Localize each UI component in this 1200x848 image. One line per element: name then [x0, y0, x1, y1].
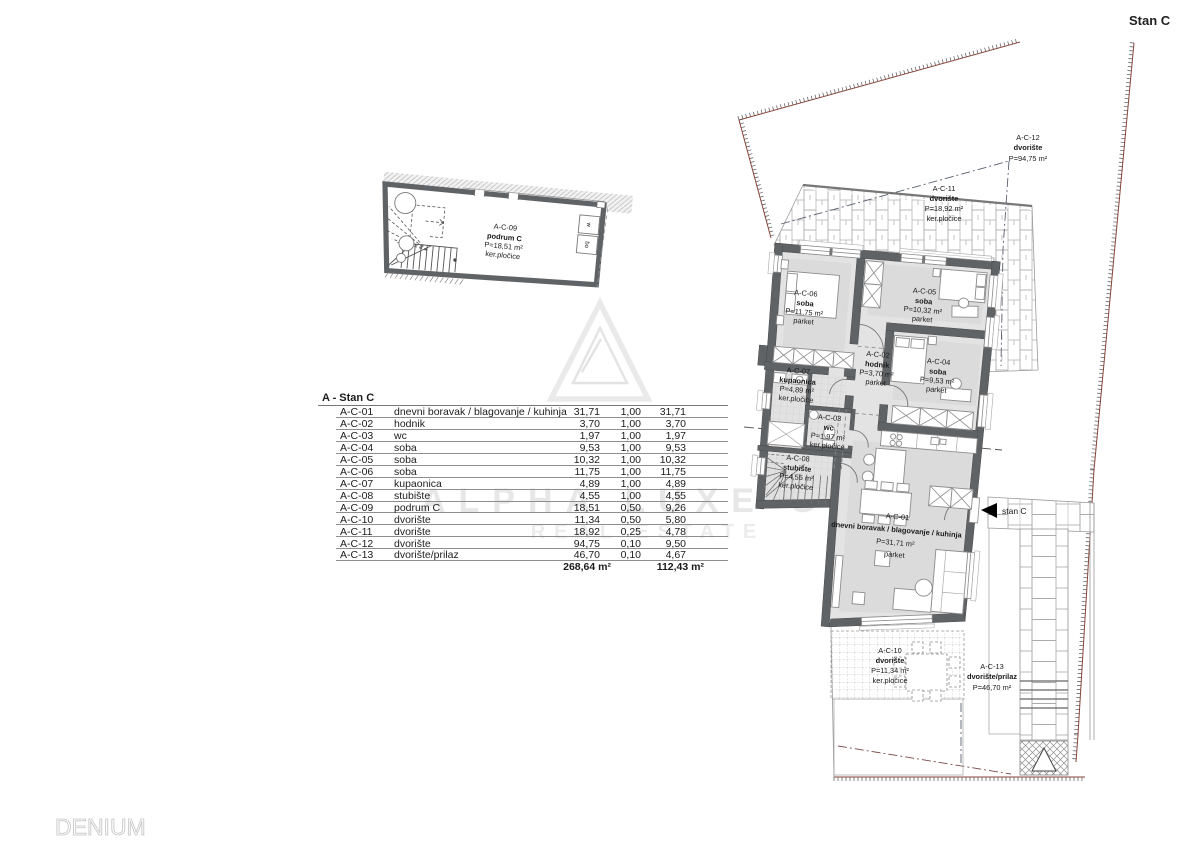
svg-text:ker.pločice: ker.pločice — [927, 214, 962, 223]
svg-text:P=46,70 m²: P=46,70 m² — [973, 683, 1012, 692]
svg-text:dvorište: dvorište — [876, 656, 905, 665]
svg-text:ker.pločice: ker.pločice — [873, 676, 908, 685]
svg-text:parket: parket — [865, 377, 886, 388]
svg-text:dvorište: dvorište — [930, 194, 959, 203]
svg-text:P=11,34 m²: P=11,34 m² — [871, 666, 909, 675]
svg-text:A-C-11: A-C-11 — [933, 184, 956, 193]
svg-text:dvorište/prilaz: dvorište/prilaz — [967, 672, 1017, 681]
svg-text:P=94,75 m²: P=94,75 m² — [1009, 154, 1048, 163]
svg-text:DENIUM: DENIUM — [55, 814, 146, 840]
svg-text:A-C-13: A-C-13 — [980, 662, 1003, 671]
svg-text:A-C-10: A-C-10 — [878, 646, 901, 655]
svg-text:bo: bo — [583, 241, 590, 249]
svg-text:parket: parket — [884, 549, 905, 560]
svg-text:P=18,92 m²: P=18,92 m² — [925, 204, 964, 213]
svg-text:dvorište: dvorište — [1014, 143, 1043, 152]
svg-text:A-C-12: A-C-12 — [1016, 133, 1039, 142]
svg-text:parket: parket — [793, 316, 814, 327]
svg-text:stan C: stan C — [1002, 506, 1027, 516]
svg-text:parket: parket — [912, 314, 933, 325]
svg-text:parket: parket — [926, 384, 947, 395]
